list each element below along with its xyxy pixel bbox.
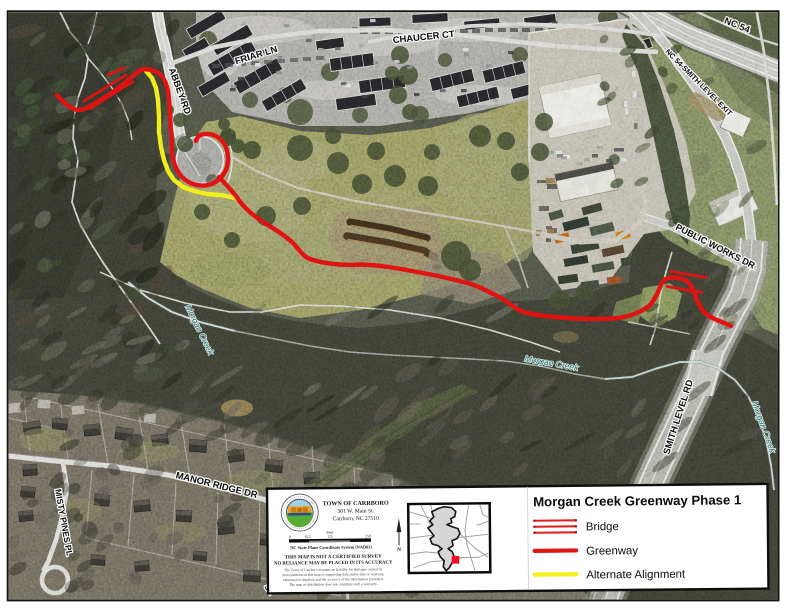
svg-text:The map of distribution does n: The map of distribution does not constit… xyxy=(289,582,378,587)
svg-text:Morgan Creek Greenway Phase 1: Morgan Creek Greenway Phase 1 xyxy=(533,492,741,509)
svg-text:Carrboro, NC 27510: Carrboro, NC 27510 xyxy=(333,516,379,522)
svg-text:N: N xyxy=(397,547,401,553)
svg-text:250: 250 xyxy=(365,534,371,538)
svg-text:Alternate Alignment: Alternate Alignment xyxy=(586,569,686,582)
svg-text:62.5: 62.5 xyxy=(305,535,312,539)
svg-text:125: 125 xyxy=(327,535,333,539)
svg-text:THIS MAP IS NOT A CERTIFIED SU: THIS MAP IS NOT A CERTIFIED SURVEY xyxy=(285,555,383,561)
svg-text:Bridge: Bridge xyxy=(586,521,619,533)
svg-text:NC State Plane Coordinate Syst: NC State Plane Coordinate System (NAD83) xyxy=(290,544,372,550)
svg-text:TOWN OF CARRBORO: TOWN OF CARRBORO xyxy=(323,501,389,508)
svg-text:0: 0 xyxy=(289,535,291,539)
svg-text:301 W. Main St.: 301 W. Main St. xyxy=(337,508,374,514)
svg-text:Greenway: Greenway xyxy=(586,545,638,558)
